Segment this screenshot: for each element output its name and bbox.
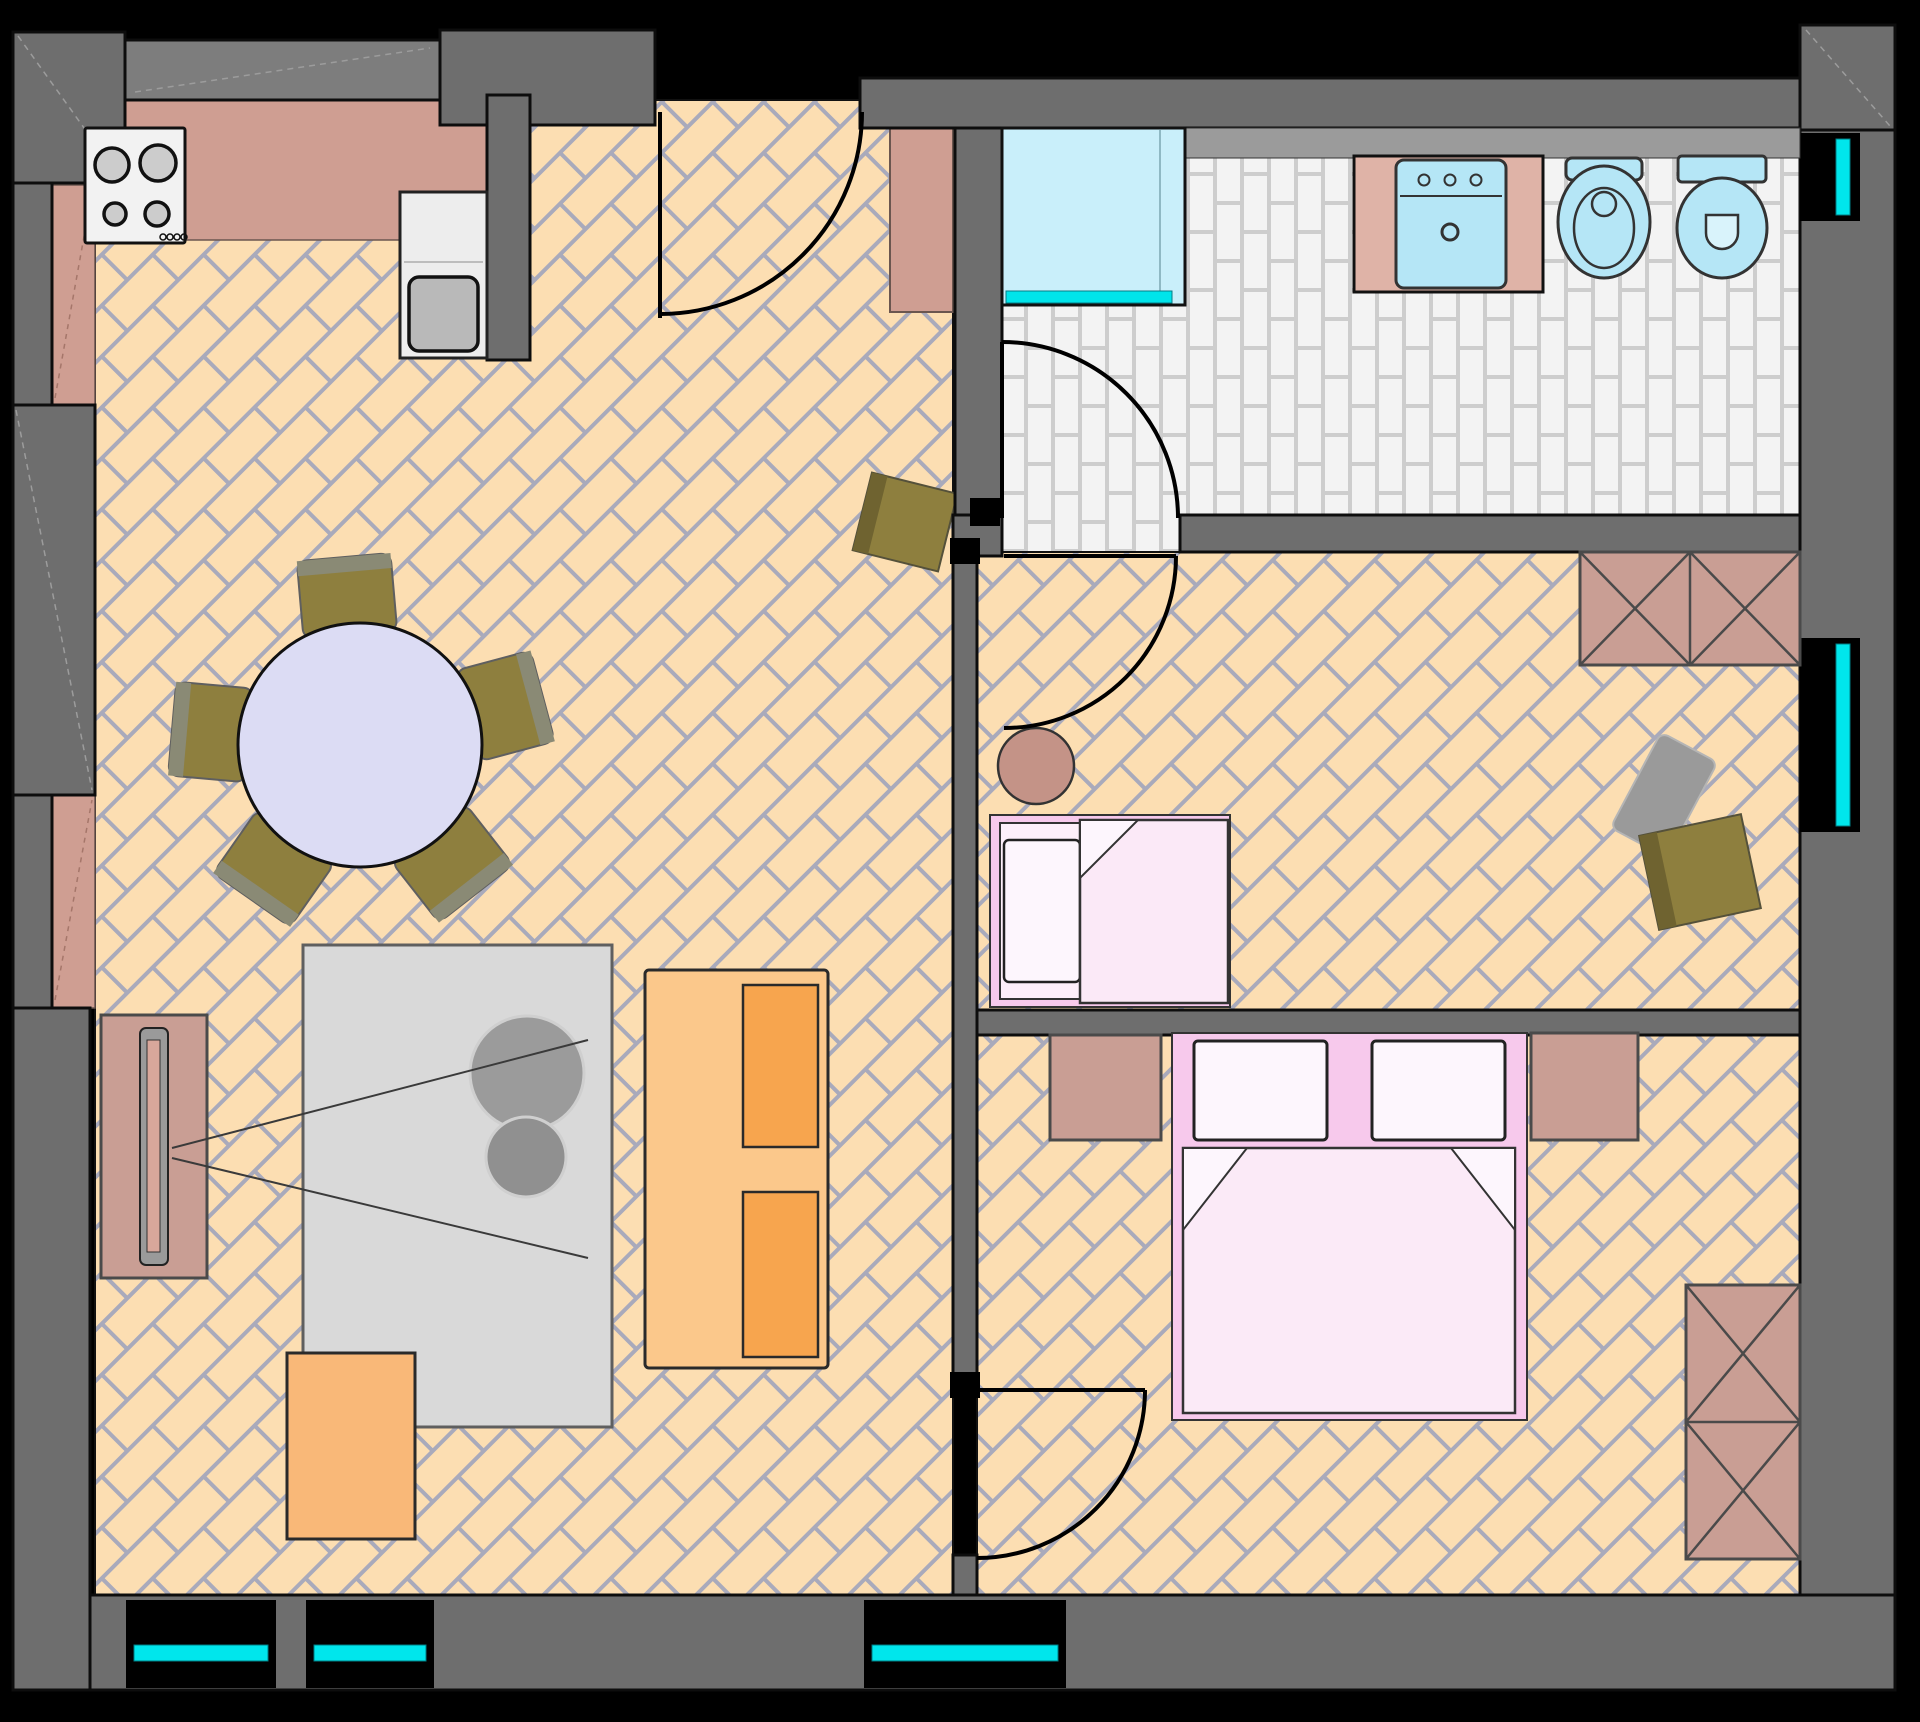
window-glass-bottom-3 [872, 1645, 1058, 1661]
wall-left-mid [13, 795, 52, 1008]
shower-glass-door [1006, 291, 1172, 303]
wall-top-kitchen [125, 40, 440, 100]
nightstand-right [1531, 1033, 1638, 1140]
door-hinge-block-bath [970, 498, 1000, 526]
window-gap-bottom-1 [126, 1600, 276, 1688]
wall-bathroom-bottom [1180, 515, 1800, 552]
wall-between-bedrooms [977, 1010, 1800, 1035]
floor-plan-stage [0, 0, 1920, 1722]
round-stool [998, 728, 1074, 804]
nightstand-left [1050, 1035, 1161, 1140]
window-glass-right-midbed [1836, 644, 1850, 826]
wall-corner-top-right [1800, 25, 1895, 130]
wall-bathroom-left [955, 128, 1002, 552]
tv-screen [147, 1040, 160, 1252]
bathroom-shelf [1185, 128, 1800, 158]
window-glass-right-bath [1836, 139, 1850, 215]
wall-left-upper [13, 183, 52, 405]
pouf-small [486, 1117, 566, 1197]
stove-burner-small [104, 203, 126, 225]
shower-tray [1002, 128, 1185, 305]
pouf-large [470, 1016, 584, 1130]
sofa-cushion-bottom [743, 1192, 818, 1357]
door-hinge-block-botbed [950, 1372, 980, 1398]
wall-entry-pier [440, 30, 655, 125]
sofa-cushion-top [743, 985, 818, 1147]
wall-top-bathroom [860, 78, 1800, 128]
window-gap-bottom-2 [306, 1600, 434, 1688]
chair-midbed [1639, 814, 1761, 930]
toilet-seat-opening [1706, 215, 1738, 249]
entry-cabinet [890, 108, 953, 312]
stove-burner-large [95, 148, 129, 182]
wall-kitchen-pier [487, 95, 530, 360]
wall-left-pier [13, 405, 95, 795]
window-gap-right-bath [1800, 133, 1860, 221]
wall-left-bottom-stub [953, 1555, 977, 1595]
wall-left-lower [13, 1008, 90, 1690]
coffee-table [287, 1353, 415, 1539]
single-bed-pillow [1004, 840, 1080, 982]
wall-right [1800, 130, 1895, 1690]
dining-table [238, 623, 482, 867]
double-bed-blanket [1183, 1148, 1515, 1413]
window-glass-bottom-1 [134, 1645, 268, 1661]
stove [85, 128, 185, 243]
window-gap-right-midbed [1800, 638, 1860, 832]
stove-burner-large [140, 145, 176, 181]
window-gap-bottom-3 [864, 1600, 1066, 1688]
kitchen-sink-basin [409, 277, 478, 351]
double-bed-pillow-left [1194, 1041, 1327, 1140]
stove-burner-small [145, 202, 169, 226]
double-bed-pillow-right [1372, 1041, 1505, 1140]
door-hinge-block-midbed [950, 538, 980, 564]
apartment-floor-plan [0, 0, 1920, 1722]
bidet-bowl [1558, 166, 1650, 278]
window-glass-bottom-2 [314, 1645, 426, 1661]
wall-bedrooms-left [953, 556, 977, 1378]
